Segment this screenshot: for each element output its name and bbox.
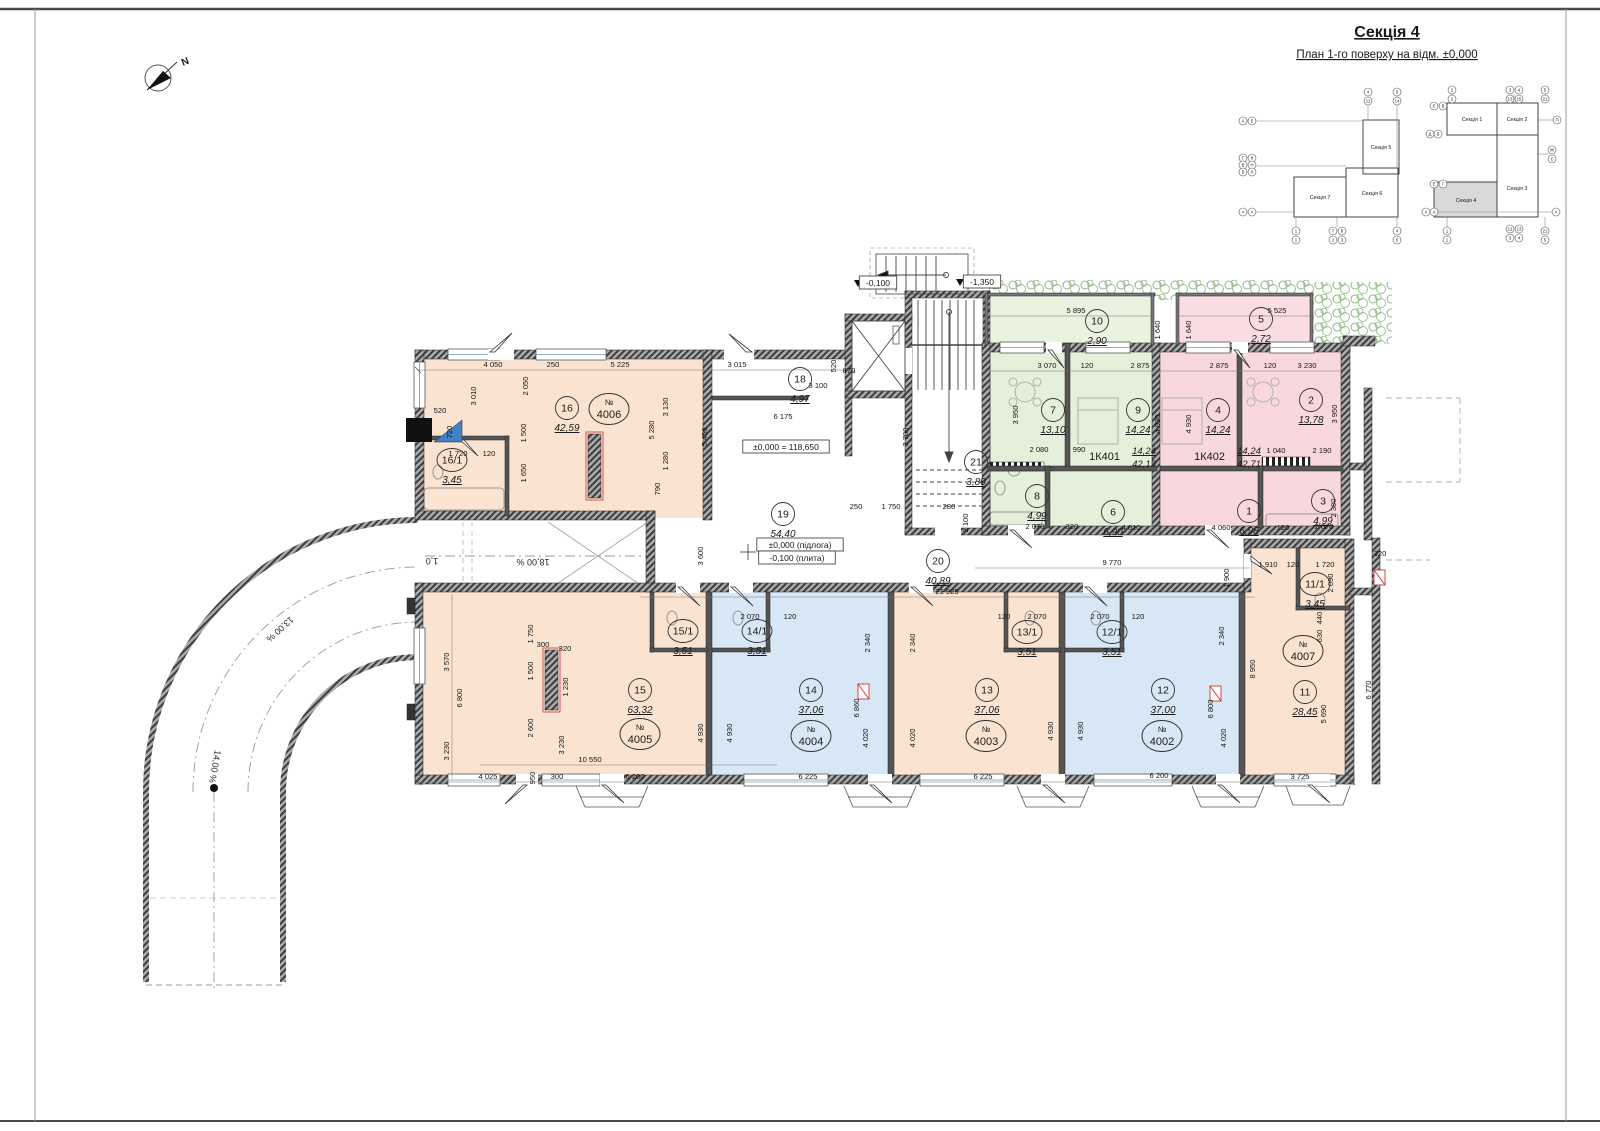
dimension-label: 4 020 xyxy=(861,728,870,747)
room-number: 13/1 xyxy=(1017,627,1038,639)
dimension-label: 300 xyxy=(551,772,564,781)
dimension-label: 250 xyxy=(547,360,560,369)
stair-flight xyxy=(912,300,983,506)
room-area: 42,59 xyxy=(554,423,579,434)
dimension-label: 990 xyxy=(1073,445,1086,454)
room-area: 3,51 xyxy=(747,646,766,657)
room-area: 14,24 xyxy=(1205,425,1230,436)
room-number: 12/1 xyxy=(1102,627,1123,639)
unit-number: 4004 xyxy=(799,736,823,748)
apartment-room-area: 14,24 xyxy=(1237,446,1261,457)
dimension-label: 2 875 xyxy=(1130,361,1149,370)
room-area: 63,32 xyxy=(627,705,652,716)
room-area: 2,90 xyxy=(1086,336,1107,347)
dimension-label: 3 070 xyxy=(1037,361,1056,370)
dimension-label: 300 xyxy=(537,640,550,649)
room-area: 3,80 xyxy=(966,477,986,488)
dimension-label: 2 100 xyxy=(961,513,970,532)
dimension-label: 120 xyxy=(998,612,1011,621)
dimension-label: 120 xyxy=(483,449,496,458)
slope-label: 1,0 xyxy=(426,556,439,566)
room-area: 4,97 xyxy=(790,394,810,405)
level-value: ±0,000 = 118,650 xyxy=(753,442,819,452)
unit-number: 4006 xyxy=(597,409,621,421)
axis-label: А xyxy=(1555,210,1558,215)
slope-label: 18,00 % xyxy=(516,557,549,567)
room-number: 13 xyxy=(981,685,993,697)
room-area: 3,45 xyxy=(1305,599,1325,610)
dimension-label: 320 xyxy=(1066,522,1079,531)
axis-label: Є xyxy=(1550,157,1553,162)
level-value: -0,100 (плита) xyxy=(770,553,825,563)
apartment-room-area: 14,24 xyxy=(1132,446,1156,457)
key-plan-section: Секція 3 xyxy=(1507,186,1528,192)
room-number: 1 xyxy=(1246,506,1252,518)
axis-label: 13 xyxy=(1508,97,1513,102)
room-area: 13,10 xyxy=(1040,425,1065,436)
dimension-label: 1 280 xyxy=(661,451,670,470)
dimension-label: 21 925 xyxy=(935,587,958,596)
sheet-subtitle: План 1-го поверху на відм. ±0,000 xyxy=(1296,49,1477,61)
dimension-label: 2 380 xyxy=(1329,498,1338,517)
dimension-label: 5 525 xyxy=(1267,306,1286,315)
axis-label: Ж xyxy=(1550,148,1554,153)
key-plan-section: Секція 2 xyxy=(1507,117,1528,123)
room-number: 4 xyxy=(1215,405,1221,417)
dimension-label: 320 xyxy=(1374,549,1387,558)
dimension-label: 6 200 xyxy=(1149,771,1168,780)
axis-label: Н xyxy=(1250,163,1253,168)
level-value: ±0,000 (підлога) xyxy=(769,540,832,550)
axis-label: Б xyxy=(1437,132,1440,137)
key-plan: Секція 5 Секція 7 Секція 6 Секція 1 Секц… xyxy=(1239,86,1561,244)
dimension-label: 3 230 xyxy=(442,741,451,760)
room-number: 15 xyxy=(634,685,646,697)
window xyxy=(1000,342,1044,353)
dimension-label: 6 200 xyxy=(625,772,644,781)
apartment-total-area: 42,71 xyxy=(1237,459,1261,470)
dimension-label: 440 xyxy=(1315,612,1324,625)
unit-number-symbol: № xyxy=(636,723,645,732)
room-area: 4,99 xyxy=(1027,511,1047,522)
room-number: 21 xyxy=(970,457,982,469)
room-number: 6 xyxy=(1110,507,1116,519)
window xyxy=(414,362,425,408)
dimension-label: 5 895 xyxy=(1066,306,1085,315)
dimension-label: 2 080 xyxy=(1029,445,1048,454)
dimension-label: 6 225 xyxy=(973,772,992,781)
room-number: 18 xyxy=(794,374,806,386)
dimension-label: 3 725 xyxy=(1290,772,1309,781)
room-area: 4,99 xyxy=(1313,516,1333,527)
dimension-label: 4 930 xyxy=(1153,414,1162,433)
kitchen-counter xyxy=(1262,457,1310,466)
slope-start-dot xyxy=(210,784,218,792)
axis-label: 21 xyxy=(1543,97,1548,102)
dimension-label: 1 910 xyxy=(1258,560,1277,569)
dimension-label: 6 225 xyxy=(798,772,817,781)
dimension-label: 2 070 xyxy=(1025,522,1044,531)
slope-label: 14,00 % xyxy=(207,749,223,783)
dimension-label: 4 930 xyxy=(1046,721,1055,740)
room-area: 40,89 xyxy=(925,576,950,587)
dimension-label: 3 700 xyxy=(901,427,910,446)
room-number: 5 xyxy=(1258,314,1264,326)
room-area: 6,90 xyxy=(1103,527,1123,538)
axis-label: Е xyxy=(1433,182,1436,187)
dimension-label: 1 900 xyxy=(1222,568,1231,587)
slope-label: 13,00 % xyxy=(264,614,295,644)
room-area: 14,24 xyxy=(1125,425,1150,436)
dimension-label: 280 xyxy=(943,502,956,511)
axis-label: А xyxy=(1242,210,1245,215)
dimension-label: 1 040 xyxy=(1266,446,1285,455)
dimension-label: 3 950 xyxy=(1330,404,1339,423)
key-plan-section: Секція 1 xyxy=(1462,117,1483,123)
dimension-label: 2 070 xyxy=(1027,612,1046,621)
room-number: 7 xyxy=(1050,405,1056,417)
dimension-label: 5 690 xyxy=(1319,704,1328,723)
key-plan-section: Секція 5 xyxy=(1371,145,1392,151)
key-plan-axis-bubbles: АЕГКВНБЛАА41151411782345ЄВДБЕГАА22341315… xyxy=(1239,86,1561,244)
dimension-label: 4 025 xyxy=(478,772,497,781)
dimension-label: 4 930 xyxy=(1184,414,1193,433)
key-plan-section: Секція 6 xyxy=(1362,191,1383,197)
axis-label: 15 xyxy=(1517,97,1522,102)
room-number: 16 xyxy=(561,403,573,415)
room-number: 11 xyxy=(1300,687,1311,699)
axis-label: П xyxy=(1555,118,1558,123)
dimension-label: 250 xyxy=(850,502,863,511)
room-number: 19 xyxy=(777,509,789,521)
room-area: 3,51 xyxy=(1017,647,1036,658)
room-number: 8 xyxy=(1034,491,1040,503)
level-value: -1,350 xyxy=(970,277,994,287)
adjacent-section-dashed xyxy=(1386,398,1460,560)
dimension-label: 2 875 xyxy=(1209,361,1228,370)
dimension-label: 6 860 xyxy=(852,698,861,717)
room-number: 12 xyxy=(1157,685,1169,697)
dimension-label: 6 770 xyxy=(1364,680,1373,699)
dimension-label: 790 xyxy=(653,483,662,496)
dimension-label: 3 570 xyxy=(442,652,451,671)
axis-label: А xyxy=(1251,210,1254,215)
dimension-label: 1 500 xyxy=(526,661,535,680)
unit-number-symbol: № xyxy=(1158,725,1167,734)
window xyxy=(414,628,425,684)
room-number: 9 xyxy=(1135,405,1141,417)
dimension-label: 3 230 xyxy=(557,735,566,754)
room-area: 3,51 xyxy=(1102,647,1121,658)
dimension-label: 1 640 xyxy=(1153,320,1162,339)
dimension-label: 6 800 xyxy=(455,688,464,707)
axis-label: А xyxy=(1425,210,1428,215)
room-number: 10 xyxy=(1091,316,1103,328)
axis-label: Б xyxy=(1242,170,1245,175)
apartment-id: 1К401 xyxy=(1089,451,1120,463)
dimension-label: 2 340 xyxy=(863,633,872,652)
dimension-label: 720 xyxy=(445,426,454,439)
dimension-label: 1 750 xyxy=(881,502,900,511)
room-number: 16/1 xyxy=(442,455,463,467)
dimension-label: 2 340 xyxy=(1217,626,1226,645)
room-number: 15/1 xyxy=(673,626,694,638)
room-number: 20 xyxy=(932,556,944,568)
drawing-sheet: N Секція 4 План 1-го поверху на відм. ±0… xyxy=(0,0,1600,1131)
dimension-label: 5 280 xyxy=(647,420,656,439)
room-area: 37,06 xyxy=(974,705,999,716)
dimension-label: 6 175 xyxy=(773,412,792,421)
dimension-label: 2 600 xyxy=(526,718,535,737)
dimension-label: 1 650 xyxy=(519,463,528,482)
room-area: 13,78 xyxy=(1298,415,1323,426)
dimension-label: 120 xyxy=(1132,612,1145,621)
unit-number-symbol: № xyxy=(1299,640,1308,649)
title-block: Секція 4 План 1-го поверху на відм. ±0,0… xyxy=(1296,24,1477,61)
dimension-label: 520 xyxy=(434,406,447,415)
window xyxy=(1186,342,1230,353)
north-arrow-icon: N xyxy=(145,56,191,91)
apartment-id: 1К402 xyxy=(1194,451,1225,463)
dimension-label: 120 xyxy=(1287,560,1300,569)
room-area: 2,72 xyxy=(1250,334,1271,345)
dimension-label: 2 340 xyxy=(908,633,917,652)
unit-number: 4002 xyxy=(1150,736,1174,748)
apartment-total-area: 42,13 xyxy=(1132,459,1156,470)
dimension-label: 5 450 xyxy=(700,427,709,446)
room-number: 14 xyxy=(805,685,817,697)
dimension-label: 4 930 xyxy=(725,723,734,742)
axis-label: Д xyxy=(1429,132,1432,137)
unit-number: 4007 xyxy=(1291,651,1315,663)
unit-number-symbol: № xyxy=(807,725,816,734)
dimension-label: 120 xyxy=(784,612,797,621)
unit-number: 4003 xyxy=(974,736,998,748)
axis-label: 14 xyxy=(1395,99,1400,104)
dimension-label: 10 550 xyxy=(578,755,601,764)
dimension-label: 6 800 xyxy=(1206,699,1215,718)
dimension-label: 2 190 xyxy=(1312,446,1331,455)
axis-label: 12 xyxy=(1508,227,1513,232)
dimension-label: 3 600 xyxy=(696,546,705,565)
dimension-label: 4 050 xyxy=(483,360,502,369)
axis-label: Є xyxy=(1432,104,1435,109)
dimension-label: 1 720 xyxy=(1315,560,1334,569)
sheet-title: Секція 4 xyxy=(1354,24,1420,41)
dimension-label: 4 020 xyxy=(1219,728,1228,747)
axis-label: Е xyxy=(1251,119,1254,124)
room-number: 3 xyxy=(1320,496,1326,508)
dimension-label: 630 xyxy=(1315,630,1324,643)
dimension-label: 1 500 xyxy=(519,423,528,442)
dimension-label: 320 xyxy=(559,644,572,653)
dimension-label: 5 225 xyxy=(610,360,629,369)
dimension-label: 1 640 xyxy=(1184,320,1193,339)
room-area: 3,45 xyxy=(442,475,462,486)
dimension-label: 3 015 xyxy=(727,360,746,369)
dimension-label: 120 xyxy=(1264,361,1277,370)
dimension-label: 2 090 xyxy=(1326,573,1335,592)
axis-label: А xyxy=(1242,119,1245,124)
room-area: 6,98 xyxy=(1239,526,1259,537)
room-number: 11/1 xyxy=(1305,579,1325,591)
unit-number-symbol: № xyxy=(982,725,991,734)
floor-plan-drawing: N Секція 4 План 1-го поверху на відм. ±0… xyxy=(0,0,1600,1131)
dimension-label: 520 xyxy=(829,360,838,373)
dimension-label: 2 050 xyxy=(521,376,530,395)
room-area: 37,06 xyxy=(798,705,823,716)
dimension-label: 3 230 xyxy=(1297,361,1316,370)
dimension-label: 8 950 xyxy=(1248,659,1257,678)
dimension-label: 4 930 xyxy=(1076,721,1085,740)
axis-label: 21 xyxy=(1543,229,1548,234)
dimension-label: 2 070 xyxy=(1090,612,1109,621)
north-label: N xyxy=(180,56,191,69)
key-plan-section: Секція 7 xyxy=(1310,195,1331,201)
unit-number-symbol: № xyxy=(605,398,614,407)
axis-label: А xyxy=(1433,210,1436,215)
room-area: 3,51 xyxy=(673,646,692,657)
dimension-label: 1 750 xyxy=(526,624,535,643)
dimension-label: 3 130 xyxy=(661,397,670,416)
entry-stairs xyxy=(870,248,974,298)
room-number: 2 xyxy=(1308,395,1314,407)
unit-number: 4005 xyxy=(628,734,652,746)
window xyxy=(536,349,606,360)
dimension-label: 870 xyxy=(843,366,856,375)
dimension-label: 950 xyxy=(528,772,537,785)
window xyxy=(1270,342,1314,353)
dimension-label: 4 010 xyxy=(1121,523,1140,532)
room-area: 37,00 xyxy=(1150,705,1175,716)
dimension-label: 3 010 xyxy=(469,386,478,405)
dimension-label: 120 xyxy=(1081,361,1094,370)
room-number: 14/1 xyxy=(747,626,768,638)
axis-label: В xyxy=(1242,163,1245,168)
axis-label: Л xyxy=(1251,170,1254,175)
dimension-label: 9 770 xyxy=(1102,558,1121,567)
room-area: 28,45 xyxy=(1291,707,1317,718)
axis-label: 13 xyxy=(1517,227,1522,232)
dimension-label: 4 930 xyxy=(696,723,705,742)
dimension-label: 3 950 xyxy=(1011,405,1020,424)
axis-label: В xyxy=(1442,104,1445,109)
dimension-label: 1 230 xyxy=(561,677,570,696)
dimension-label: 4 060 xyxy=(1211,523,1230,532)
dimension-label: 120 xyxy=(1277,523,1290,532)
axis-label: 11 xyxy=(1366,99,1371,104)
sheet-frame xyxy=(0,9,1600,1121)
key-plan-section-highlighted: Секція 4 xyxy=(1456,198,1477,204)
dimension-label: 4 020 xyxy=(908,728,917,747)
level-value: -0,100 xyxy=(866,278,890,288)
